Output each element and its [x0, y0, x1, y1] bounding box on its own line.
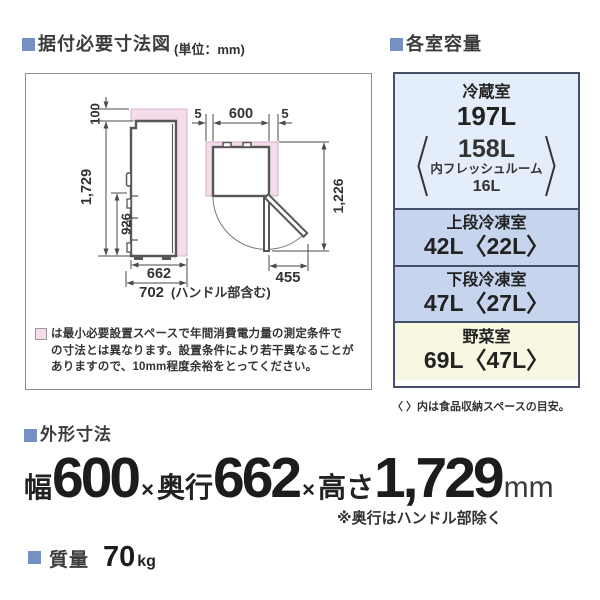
- hinge-bump: [243, 143, 251, 148]
- note-line: の寸法とは異なります。設置条件により若干異なることが: [51, 343, 354, 360]
- capacity-heading: 各室容量: [390, 35, 482, 55]
- row-value: 47L〈27L〉: [424, 290, 549, 318]
- section-bullet-icon: [390, 38, 403, 51]
- bracket-open-icon: [415, 133, 429, 199]
- bracket-close-icon: [544, 133, 558, 199]
- fridge-foot: [134, 256, 143, 260]
- dim-handle-note: (ハンドル部含む): [171, 285, 271, 300]
- section-bullet-icon: [28, 551, 41, 564]
- hinge-bump: [223, 143, 231, 148]
- capacity-row-vegetable: 野菜室 69L〈47L〉: [395, 321, 578, 380]
- height-label: 高さ: [318, 466, 374, 506]
- multiply-sign: ×: [141, 477, 154, 503]
- height-value: 1,729: [374, 450, 502, 507]
- fridge-foot: [162, 256, 171, 260]
- capacity-title: 各室容量: [406, 35, 482, 55]
- section-bullet-icon: [22, 38, 35, 51]
- capacity-table: 冷蔵室 197L 158L 内フレッシュルーム 16L 上段冷凍室 42L〈22…: [393, 72, 580, 388]
- dim-width: 600: [229, 106, 253, 122]
- capacity-row-fridge: 冷蔵室 197L 158L 内フレッシュルーム 16L: [395, 74, 578, 208]
- external-dimensions-heading: 外形寸法: [24, 426, 112, 445]
- drawer-handle: [127, 243, 131, 252]
- mass-row: 質量 70 kg: [28, 541, 156, 574]
- depth-value: 662: [213, 450, 299, 507]
- installation-heading: 据付必要寸法図 (単位：mm): [22, 35, 245, 58]
- drawer-handle: [127, 199, 131, 208]
- installation-note: は最小必要設置スペースで年間消費電力量の測定条件で の寸法とは異なります。設置条…: [35, 326, 354, 376]
- dim-depth: 662: [147, 266, 171, 282]
- mass-title: 質量: [49, 545, 89, 572]
- section-bullet-icon: [24, 429, 37, 442]
- dim-height: 1,729: [79, 169, 95, 205]
- installation-title: 据付必要寸法図: [38, 35, 171, 55]
- mm-unit: mm: [504, 471, 554, 505]
- installation-diagram-box: 100 1,729 926 662 702 (ハンドル部含む) 5 600 5 …: [25, 73, 372, 390]
- capacity-row-lower-freezer: 下段冷凍室 47L〈27L〉: [395, 265, 578, 321]
- row-value: 42L〈22L〉: [424, 233, 549, 261]
- external-dimensions-note: ※奥行はハンドル部除く: [337, 507, 502, 528]
- dim-top-clearance: 100: [88, 103, 103, 125]
- mass-value: 70: [103, 541, 135, 574]
- row-sub-group: 158L 内フレッシュルーム 16L: [415, 133, 557, 199]
- depth-label: 奥行: [157, 466, 213, 506]
- note-line: は最小必要設置スペースで年間消費電力量の測定条件で: [51, 326, 354, 343]
- row-name: 冷蔵室: [462, 83, 510, 102]
- row-name: 下段冷凍室: [446, 271, 526, 290]
- spec-page: 据付必要寸法図 (単位：mm) 各室容量: [0, 0, 600, 600]
- width-label: 幅: [24, 466, 52, 506]
- multiply-sign: ×: [302, 477, 315, 503]
- dim-door-open: 455: [275, 269, 300, 286]
- capacity-row-upper-freezer: 上段冷凍室 42L〈22L〉: [395, 208, 578, 265]
- row-sub-value2: 16L: [473, 177, 501, 196]
- dim-right-gap: 5: [281, 106, 288, 121]
- width-value: 600: [52, 450, 138, 507]
- door-handle: [127, 173, 132, 186]
- mass-unit: kg: [137, 553, 156, 571]
- row-name: 野菜室: [462, 328, 510, 347]
- external-dimensions-title: 外形寸法: [40, 426, 112, 445]
- capacity-footnote: 〈 〉内は食品収納スペースの目安。: [392, 398, 570, 414]
- note-line: ありますので、10mm程度余裕をとってください。: [51, 359, 354, 376]
- row-sub-value: 158L: [458, 136, 515, 162]
- external-dimensions-line: 幅 600 × 奥行 662 × 高さ 1,729 mm: [24, 450, 554, 507]
- dim-drawer-height: 926: [119, 213, 134, 235]
- fridge-side-body: [131, 121, 176, 256]
- door-open-90: [264, 196, 269, 251]
- pink-square-icon: [35, 328, 47, 340]
- dim-total-depth: 1,226: [330, 178, 346, 213]
- door-open-135: [265, 194, 307, 236]
- installation-unit: (単位：mm): [174, 39, 245, 58]
- dim-left-gap: 5: [194, 106, 201, 121]
- row-name: 上段冷凍室: [446, 214, 526, 233]
- row-sub-label: 内フレッシュルーム: [430, 162, 542, 178]
- fridge-top-body: [213, 147, 269, 196]
- row-value: 69L〈47L〉: [424, 347, 549, 375]
- row-value: 197L: [457, 102, 516, 132]
- dim-depth-with-handle: 702: [139, 284, 164, 301]
